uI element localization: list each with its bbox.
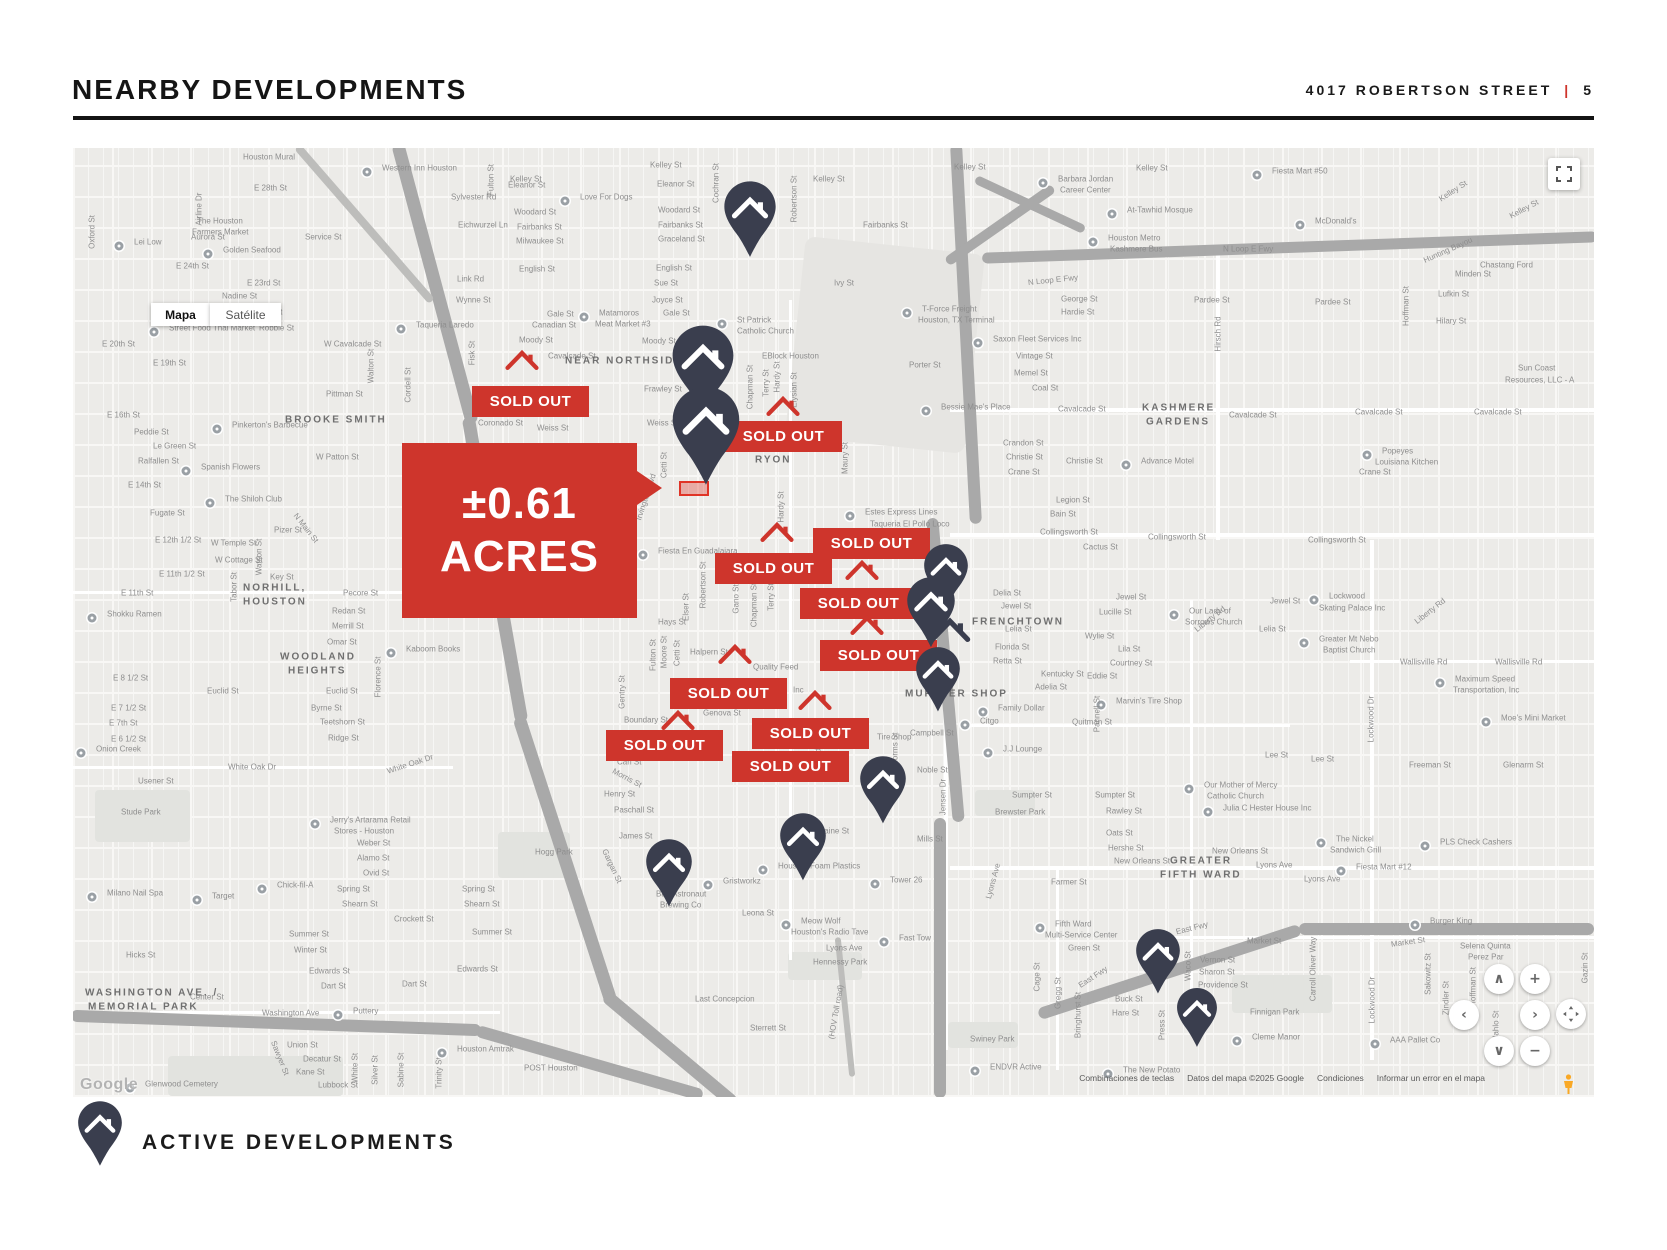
poi-label: Puttery	[353, 1007, 378, 1016]
pan-down-button[interactable]: ∨	[1484, 1036, 1514, 1066]
street-label: W Temple St	[211, 539, 256, 548]
poi-label: Chick-fil-A	[277, 881, 313, 890]
street-label: Le Green St	[153, 442, 196, 451]
poi-icon	[77, 749, 86, 758]
pegman-icon[interactable]	[1562, 1074, 1575, 1097]
street-label: Collingsworth St	[1040, 528, 1098, 537]
street-label: Union St	[287, 1041, 318, 1050]
red-roof-icon	[845, 557, 879, 580]
street-label: Redan St	[332, 607, 365, 616]
sold-out-badge: SOLD OUT	[670, 678, 787, 709]
street-label: Memel St	[1014, 369, 1048, 378]
page-title: NEARBY DEVELOPMENTS	[72, 74, 467, 106]
street-label: Florida St	[995, 643, 1029, 652]
fullscreen-button[interactable]	[1548, 158, 1580, 190]
street-label: Crane St	[1008, 468, 1040, 477]
street-label: White St	[351, 1053, 360, 1083]
poi-label: Our Mother of Mercy	[1204, 781, 1277, 790]
street-label: Ralfallen St	[138, 457, 179, 466]
street-label: Swiney Park	[970, 1035, 1014, 1044]
area-label: GARDENS	[1146, 417, 1210, 428]
street-label: Quality Feed	[753, 663, 798, 672]
street-label: Christie St	[1066, 457, 1103, 466]
street-label: Dart St	[402, 980, 427, 989]
street-label: Kentucky St	[1041, 670, 1084, 679]
poi-icon	[397, 325, 406, 334]
street-label: Pardee St	[1194, 296, 1230, 305]
street-label: Collingsworth St	[1308, 536, 1366, 545]
poi-label: Marvin's Tire Shop	[1116, 697, 1182, 706]
street-label: New Orleans St	[1212, 847, 1268, 856]
street-label: Minden St	[1455, 270, 1491, 279]
poi-icon	[984, 749, 993, 758]
road-line	[1150, 936, 1594, 939]
highway-segment	[982, 231, 1594, 263]
poi-icon	[258, 885, 267, 894]
poi-label: Matamoros	[599, 309, 639, 318]
google-logo: Google	[80, 1076, 138, 1094]
street-label: Courtney St	[1110, 659, 1152, 668]
street-label: Coronado St	[478, 419, 523, 428]
street-label: E 8 1/2 St	[113, 674, 148, 683]
street-label: Byrne St	[311, 704, 342, 713]
street-label: Kelley St	[1437, 179, 1468, 204]
street-label: Lockwood Dr	[1368, 977, 1377, 1024]
area-label: FRENCHTOWN	[972, 617, 1064, 628]
street-label: Edwards St	[457, 965, 498, 974]
street-label: Carroll Oliver Way	[1309, 937, 1318, 1002]
poi-label: Burger King	[1430, 917, 1472, 926]
poi-icon	[903, 309, 912, 318]
street-label: Gentry St	[618, 675, 627, 709]
street-label: W Patton St	[316, 453, 359, 462]
street-label: Fairbanks St	[517, 223, 562, 232]
poi-icon	[1337, 867, 1346, 876]
area-label: GREATER	[1170, 856, 1232, 867]
poi-icon	[961, 721, 970, 730]
street-label: E 23rd St	[247, 279, 280, 288]
poi-label: T-Force Freight	[922, 305, 977, 314]
road-line	[1056, 870, 1059, 1070]
street-label: Buck St	[1115, 995, 1143, 1004]
street-label: Woodard St	[514, 208, 556, 217]
street-label: Summer St	[289, 930, 329, 939]
area-label: HOUSTON	[243, 597, 307, 608]
street-label: Hardie St	[1061, 308, 1094, 317]
street-label: Fulton St	[487, 164, 496, 196]
street-label: Hare St	[1112, 1009, 1139, 1018]
poi-icon	[971, 1067, 980, 1076]
street-label: Fairbanks St	[658, 221, 703, 230]
poi-label: Citgo	[980, 717, 999, 726]
poi-label: Milano Nail Spa	[107, 889, 163, 898]
red-roof-icon	[661, 707, 695, 730]
area-label: WOODLAND	[280, 652, 356, 663]
street-label: Robertson St	[790, 176, 799, 223]
map-attribution: Combinaciones de teclasDatos del mapa ©2…	[1079, 1073, 1485, 1083]
street-label: Sumpter St	[1012, 791, 1052, 800]
street-label: Meat Market #3	[595, 320, 651, 329]
street-label: Gregg St	[1054, 977, 1063, 1009]
street-label: White Oak Dr	[228, 763, 276, 772]
poi-icon	[561, 197, 570, 206]
poi-label: AAA Pallet Co	[1390, 1036, 1440, 1045]
street-label: Catholic Church	[1207, 792, 1264, 801]
street-label: Hershe St	[1108, 844, 1144, 853]
street-label: Kane St	[296, 1068, 324, 1077]
street-label: Chastang Ford	[1480, 261, 1533, 270]
zoom-in-button[interactable]: +	[1520, 964, 1550, 994]
street-label: Lila St	[1118, 645, 1140, 654]
street-label: Houston Mural	[243, 153, 295, 162]
area-label: KASHMERE	[1142, 403, 1215, 414]
street-label: George St	[1061, 295, 1097, 304]
street-label: Cavalcade St	[1474, 408, 1522, 417]
street-label: Watson St	[255, 539, 264, 576]
street-label: Key St	[270, 573, 294, 582]
street-label: E 6 1/2 St	[111, 735, 146, 744]
poi-label: Fiesta Mart #50	[1272, 167, 1328, 176]
poi-label: Shokku Ramen	[107, 610, 162, 619]
pan-compass-button[interactable]	[1556, 999, 1586, 1029]
poi-icon	[1411, 921, 1420, 930]
poi-icon	[782, 921, 791, 930]
street-label: Sun Coast	[1518, 364, 1555, 373]
area-label: NORHILL,	[243, 583, 306, 594]
poi-label: Cleme Manor	[1252, 1033, 1300, 1042]
street-label: Spring St	[337, 885, 370, 894]
street-label: Henry St	[604, 790, 635, 799]
street-label: Cactus St	[1083, 543, 1118, 552]
street-label: E 16th St	[107, 411, 140, 420]
street-label: Edwards St	[309, 967, 350, 976]
street-label: Graceland St	[658, 235, 705, 244]
poi-icon	[1122, 461, 1131, 470]
map-canvas[interactable]: ±0.61 ACRES Houston MuralWestern Inn Hou…	[73, 148, 1594, 1097]
street-label: Jensen Dr	[939, 779, 948, 815]
poi-label: Western Inn Houston	[382, 164, 457, 173]
street-label: Eleanor St	[657, 180, 694, 189]
street-label: Career Center	[1060, 186, 1111, 195]
poi-label: Taqueria Laredo	[416, 321, 474, 330]
street-label: Campbell St	[910, 729, 954, 738]
street-label: Crandon St	[1003, 439, 1043, 448]
poi-icon	[115, 242, 124, 251]
area-label: HEIGHTS	[288, 666, 346, 677]
street-label: Hicks St	[126, 951, 155, 960]
header-rule	[73, 116, 1594, 120]
poi-label: Glenwood Cemetery	[145, 1080, 218, 1089]
poi-label: Popeyes	[1382, 447, 1413, 456]
map-type-button-satelite[interactable]: Satélite	[210, 303, 281, 326]
street-label: Lee St	[1311, 755, 1334, 764]
street-label: Gale St	[663, 309, 690, 318]
map-type-button-mapa[interactable]: Mapa	[151, 303, 210, 326]
street-label: Vintage St	[1016, 352, 1053, 361]
poi-icon	[846, 512, 855, 521]
street-label: Usener St	[138, 777, 174, 786]
street-label: Sterrett St	[750, 1024, 786, 1033]
poi-icon	[1296, 221, 1305, 230]
street-label: Sabine St	[397, 1053, 406, 1088]
street-label: Christie St	[1006, 453, 1043, 462]
street-label: Cochran St	[712, 163, 721, 203]
road-line	[960, 724, 1290, 727]
street-label: Euclid St	[326, 687, 358, 696]
street-label: Shearn St	[342, 900, 378, 909]
street-label: Wylie St	[1085, 632, 1114, 641]
street-label: E 28th St	[254, 184, 287, 193]
area-label: MEMORIAL PARK	[88, 1002, 199, 1013]
sold-out-badge: SOLD OUT	[725, 421, 842, 452]
street-label: Euclid St	[207, 687, 239, 696]
area-label: FIFTH WARD	[1160, 870, 1242, 881]
header-page-number: 5	[1583, 82, 1594, 98]
highway-segment	[475, 1025, 704, 1097]
street-label: Leona St	[742, 909, 774, 918]
poi-label: Spanish Flowers	[201, 463, 260, 472]
street-label: Lockwood Dr	[1367, 696, 1376, 743]
street-label: Cage St	[1033, 963, 1042, 992]
red-roof-icon	[760, 519, 794, 542]
poi-icon	[1436, 679, 1445, 688]
street-label: Houston, TX Terminal	[918, 316, 995, 325]
street-label: Vernon St	[1200, 956, 1235, 965]
street-label: Bringhurst St	[1074, 992, 1083, 1038]
pan-left-button[interactable]: ‹	[1449, 1000, 1479, 1030]
poi-label: Houston Metro	[1108, 234, 1160, 243]
street-label: N Loop E Fwy	[1028, 273, 1079, 287]
street-label: Delia St	[993, 589, 1021, 598]
street-label: Joyce St	[652, 296, 683, 305]
poi-label: St Patrick	[737, 316, 771, 325]
street-label: Spring St	[462, 885, 495, 894]
street-label: Porter St	[909, 361, 941, 370]
poi-icon	[639, 551, 648, 560]
map-pin	[671, 385, 741, 487]
street-label: Kelley St	[954, 163, 986, 172]
road-line	[1350, 660, 1594, 663]
street-label: Freeman St	[1409, 761, 1451, 770]
street-label: Sumpter St	[1095, 791, 1135, 800]
street-label: Green St	[1068, 944, 1100, 953]
street-label: Paschall St	[614, 806, 654, 815]
street-label: New Orleans St	[1114, 857, 1170, 866]
area-label: WASHINGTON AVE. /	[85, 988, 218, 999]
street-label: Ovid St	[363, 869, 389, 878]
street-label: Cavalcade St	[1355, 408, 1403, 417]
street-label: Baptist Church	[1323, 646, 1375, 655]
poi-icon	[213, 425, 222, 434]
fullscreen-icon	[1556, 166, 1572, 182]
acreage-callout: ±0.61 ACRES	[402, 443, 637, 618]
street-label: Alamo St	[357, 854, 389, 863]
street-label: E 7th St	[109, 719, 137, 728]
street-label: Market St	[1247, 937, 1281, 946]
street-label: Hennessy Park	[813, 958, 867, 967]
poi-label: J.J Lounge	[1003, 745, 1042, 754]
street-label: Glenarm St	[1503, 761, 1543, 770]
map-layer: ±0.61 ACRES Houston MuralWestern Inn Hou…	[73, 148, 1594, 1097]
street-label: Gale St	[547, 310, 574, 319]
street-label: English St	[519, 265, 555, 274]
zoom-out-button[interactable]: −	[1520, 1036, 1550, 1066]
street-label: Ivy St	[834, 279, 854, 288]
street-label: Skating Palace Inc	[1319, 604, 1385, 613]
street-label: Summer St	[472, 928, 512, 937]
street-label: Brewster Park	[995, 808, 1045, 817]
poi-icon	[974, 339, 983, 348]
street-label: Hilary St	[1436, 317, 1466, 326]
street-label: Lelia St	[1259, 625, 1286, 634]
poi-label: Saxon Fleet Services Inc	[993, 335, 1081, 344]
street-label: N Loop E Fwy	[1223, 245, 1273, 254]
street-label: Washington Ave	[262, 1009, 319, 1018]
poi-icon	[1363, 451, 1372, 460]
poi-label: Target	[212, 892, 234, 901]
street-label: Kashmere Bus	[1110, 245, 1162, 254]
street-label: Sue St	[654, 279, 678, 288]
area-label: RYON	[755, 455, 792, 466]
poi-label: Onion Creek	[96, 745, 141, 754]
street-label: Decatur St	[303, 1055, 341, 1064]
street-label: Pannell St	[1093, 696, 1102, 732]
poi-icon	[1310, 596, 1319, 605]
poi-icon	[979, 708, 988, 717]
poi-icon	[922, 407, 931, 416]
poi-icon	[438, 1049, 447, 1058]
street-label: Chapman St	[750, 583, 759, 627]
street-label: E 11th 1/2 St	[159, 570, 205, 579]
street-label: E 7 1/2 St	[111, 704, 146, 713]
street-label: Pecore St	[343, 589, 378, 598]
attribution-item[interactable]: Combinaciones de teclas	[1079, 1073, 1174, 1083]
street-label: Nadine St	[222, 292, 257, 301]
street-label: Lyons Ave	[1256, 861, 1292, 870]
street-label: Sandwich Grill	[1330, 846, 1381, 855]
street-label: Tabor St	[230, 572, 239, 602]
street-label: Fugate St	[150, 509, 185, 518]
poi-label: Fast Tow	[899, 934, 931, 943]
poi-label: Greater Mt Nebo	[1319, 635, 1379, 644]
poi-icon	[871, 880, 880, 889]
poi-icon	[363, 168, 372, 177]
street-label: Eichwurzel Ln	[458, 221, 508, 230]
street-label: Hogg Park	[535, 848, 573, 857]
street-label: Gargan St	[600, 848, 624, 885]
attribution-item[interactable]: Condiciones	[1317, 1073, 1364, 1083]
poi-icon	[1253, 171, 1262, 180]
map-pin	[723, 180, 777, 258]
street-label: Terry St	[767, 583, 776, 611]
street-label: Shearn St	[464, 900, 500, 909]
poi-label: The Nickel	[1336, 835, 1374, 844]
poi-label: Jerry's Artarama Retail	[330, 816, 411, 825]
street-label: Bain St	[1050, 510, 1076, 519]
street-label: Catholic Church	[737, 327, 794, 336]
street-label: Liberty Rd	[1413, 596, 1447, 626]
poi-label: PLS Check Cashers	[1440, 838, 1512, 847]
street-label: Noble St	[917, 766, 948, 775]
street-label: Last Concepcion	[695, 995, 755, 1004]
road-line	[1216, 250, 1220, 540]
poi-label: Moe's Mini Market	[1501, 714, 1566, 723]
street-label: Ridge St	[328, 734, 359, 743]
area-label: NEAR NORTHSIDE	[565, 356, 683, 367]
poi-label: Meow Wolf	[801, 917, 840, 926]
street-label: Cavalcade St	[1229, 411, 1277, 420]
attribution-item[interactable]: Informar un error en el mapa	[1377, 1073, 1485, 1083]
street-label: Hirsch Rd	[1214, 316, 1223, 351]
street-label: Legion St	[1056, 496, 1090, 505]
poi-icon	[387, 649, 396, 658]
street-label: Jewel St	[1270, 597, 1300, 606]
street-label: Waco St	[1184, 951, 1193, 981]
poi-icon	[1108, 210, 1117, 219]
street-label: Robertson St	[699, 562, 708, 609]
street-label: Jewel St	[1116, 593, 1146, 602]
street-label: Farmers Market	[192, 228, 248, 237]
street-label: Genova St	[703, 709, 741, 718]
header-address: 4017 ROBERTSON STREET	[1306, 82, 1553, 98]
red-roof-icon	[718, 641, 752, 664]
poi-icon	[1233, 1037, 1242, 1046]
poi-label: Kaboom Books	[406, 645, 460, 654]
street-label: Transportation, Inc	[1453, 686, 1519, 695]
street-label: Selena Quinta	[1460, 942, 1511, 951]
red-roof-icon	[766, 393, 800, 416]
red-roof-icon	[798, 687, 832, 710]
map-pin	[1176, 987, 1218, 1048]
poi-label: Julia C Hester House Inc	[1223, 804, 1311, 813]
street-label: Moore St	[660, 636, 669, 668]
poi-icon	[182, 467, 191, 476]
attribution-item: Datos del mapa ©2025 Google	[1187, 1073, 1304, 1083]
pan-right-button[interactable]: ›	[1520, 1000, 1550, 1030]
poi-label: ENDVR Active	[990, 1063, 1042, 1072]
street-label: Eleanor St	[508, 181, 545, 190]
pan-up-button[interactable]: ∧	[1484, 964, 1514, 994]
poi-label: Gristworkz	[723, 877, 761, 886]
street-label: Milwaukee St	[516, 237, 564, 246]
street-label: EBlock Houston	[762, 352, 819, 361]
street-label: Cetti St	[673, 640, 682, 666]
poi-icon	[1089, 238, 1098, 247]
poi-label: Tower 26	[890, 876, 922, 885]
street-label: Crane St	[1359, 468, 1391, 477]
street-label: Sharon St	[1199, 968, 1235, 977]
acreage-value: ±0.61	[462, 481, 577, 527]
map-pin	[1135, 928, 1181, 995]
street-label: Oxford St	[88, 215, 97, 249]
street-label: English St	[656, 264, 692, 273]
street-label: Morris St	[611, 767, 643, 790]
street-label: POST Houston	[524, 1064, 578, 1073]
sold-out-badge: SOLD OUT	[606, 730, 723, 761]
street-label: Woodard St	[658, 206, 700, 215]
street-label: E 19th St	[153, 359, 186, 368]
poi-icon	[1170, 611, 1179, 620]
street-label: Wallisville Rd	[1495, 658, 1542, 667]
street-label: Fisk St	[468, 341, 477, 365]
poi-label: Love For Dogs	[580, 193, 632, 202]
poi-label: Family Dollar	[998, 704, 1045, 713]
street-label: E 11th St	[121, 589, 153, 598]
street-label: Pizer St	[274, 526, 302, 535]
poi-icon	[206, 499, 215, 508]
street-label: Lee St	[1265, 751, 1288, 760]
street-label: Lucille St	[1099, 608, 1131, 617]
